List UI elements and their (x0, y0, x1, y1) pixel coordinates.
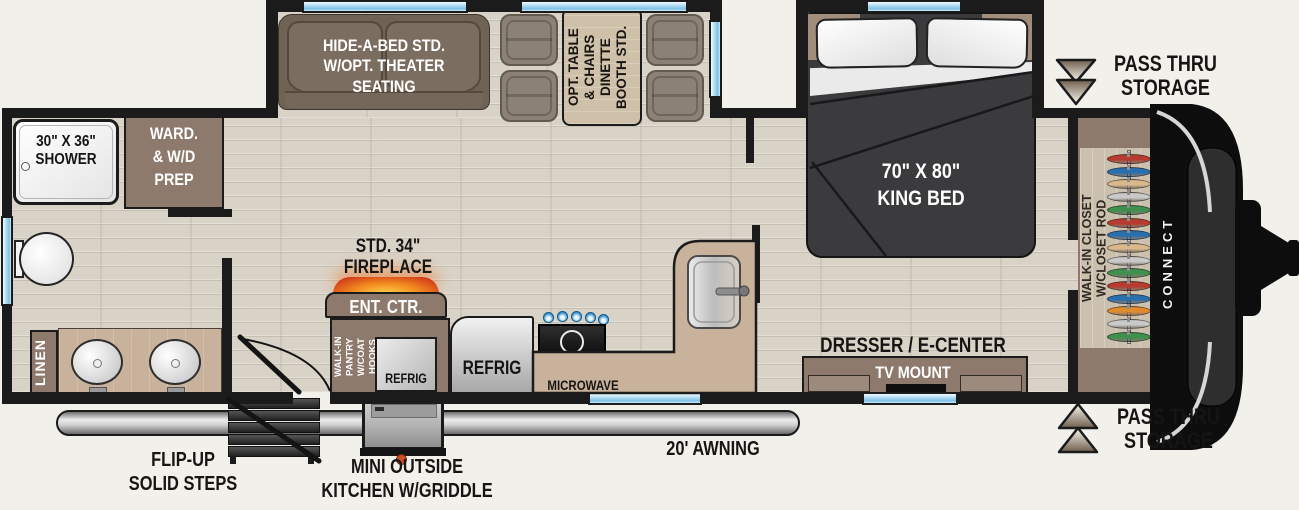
burner-ring (560, 330, 584, 354)
closet-rod-hangers (1107, 154, 1151, 344)
griddle-handle (375, 407, 384, 411)
walk-in-closet: WALK-IN CLOSET W/CLOSET ROD (1078, 118, 1156, 394)
wall-top-left (2, 108, 278, 118)
step-tread (228, 434, 320, 445)
clothes-hanger (1107, 319, 1151, 329)
awning-label: 20' AWNING (647, 438, 778, 460)
pass-thru-arrow-down (1057, 60, 1095, 104)
clothes-hanger (1107, 294, 1151, 304)
sofa-window (302, 0, 468, 13)
dresser-window (862, 392, 958, 405)
wall-bath-partition (222, 258, 232, 404)
wall-bedslide-right (1032, 0, 1044, 118)
wall-slideout-left (266, 0, 278, 118)
hitch-tongue (1261, 226, 1297, 290)
wall-closet-upper (1068, 117, 1078, 240)
dinette-chair (646, 14, 704, 66)
clothes-hanger (1107, 167, 1151, 177)
dinette-chair (500, 70, 558, 122)
wall-top-right (1032, 108, 1162, 118)
microwave-label: MICROWAVE (538, 378, 628, 394)
clothes-hanger (1107, 256, 1151, 266)
dinette-table-label: OPT. TABLE & CHAIRS DINETTE BOOTH STD. (566, 12, 638, 122)
toilet (19, 232, 74, 286)
outside-kitchen-unit (362, 396, 444, 450)
wall-closet-lower (1068, 290, 1078, 404)
ent-center-cabinet: ENT. CTR. (325, 292, 447, 318)
wall-bedslide-left (796, 0, 808, 118)
dresser-label: DRESSER / E-CENTER (815, 334, 1012, 358)
dinette-side-window (709, 20, 722, 98)
clothes-hanger (1107, 243, 1151, 253)
sink-drain (93, 359, 102, 368)
burner-flame-icon (557, 311, 568, 322)
wall-bottom-right (330, 392, 1162, 404)
wall-wardrobe-bottom (168, 209, 232, 217)
dinette-chair (646, 70, 704, 122)
king-bed (806, 12, 1036, 258)
clothes-hanger (1107, 179, 1151, 189)
bed-pillow (926, 17, 1029, 69)
step-tread (228, 410, 320, 421)
pantry-label: WALK-IN PANTRY W/COAT HOOKS (333, 321, 361, 393)
tv-mount-label: TV MOUNT (854, 362, 973, 383)
clothes-hanger (1107, 268, 1151, 278)
refrigerator-large-label: REFRIG (459, 358, 525, 379)
sink-drain (171, 359, 180, 368)
bed-pillow (816, 17, 919, 69)
burner-flame-icon (585, 312, 596, 323)
refrigerator-small: REFRIG (375, 337, 437, 392)
clothes-hanger (1107, 154, 1151, 164)
step-tread (228, 422, 320, 433)
vanity-counter (58, 328, 222, 396)
bed-window (866, 0, 962, 13)
rear-wall-window (1, 216, 13, 306)
stove-cooktop (538, 324, 606, 358)
refrigerator-large: REFRIG (450, 316, 534, 396)
hitch-body (1235, 200, 1261, 316)
linen-label: LINEN (32, 332, 56, 394)
clothes-hanger (1107, 218, 1151, 228)
wardrobe-label: WARD.& W/DPREP (132, 123, 217, 192)
wall-bedroom-stub-bottom (752, 225, 760, 303)
ent-center-label: ENT. CTR. (336, 296, 436, 319)
floorplan: OPT. TABLE & CHAIRS DINETTE BOOTH STD. E… (0, 0, 1299, 510)
king-bed-label: 70" X 80"KING BED (836, 158, 1006, 213)
refrigerator-small-label: REFRIG (382, 371, 430, 386)
burner-flame-icon (543, 312, 554, 323)
kitchen-window (588, 392, 702, 405)
clothes-hanger (1107, 230, 1151, 240)
clothes-hanger (1107, 192, 1151, 202)
shower-label: 30" X 36"SHOWER (24, 133, 109, 170)
outside-kitchen-label: MINI OUTSIDEKITCHEN W/GRIDDLE (309, 455, 506, 503)
front-cap-panel (1188, 148, 1236, 406)
clothes-hanger (1107, 306, 1151, 316)
pass-thru-arrow-up (1059, 404, 1097, 452)
fireplace-label: STD. 34"FIREPLACE (322, 236, 453, 279)
steps-label: FLIP-UPSOLID STEPS (109, 448, 257, 496)
clothes-hanger (1107, 281, 1151, 291)
brand-logo: CONNECT (1160, 188, 1180, 338)
hide-a-bed-label: HIDE-A-BED STD.W/OPT. THEATERSEATING (298, 36, 470, 97)
dinette-window (520, 0, 688, 13)
pantry-refrig-cabinet: WALK-IN PANTRY W/COAT HOOKS REFRIG (330, 318, 450, 396)
wall-top-mid (710, 108, 808, 118)
closet-label: WALK-IN CLOSET W/CLOSET ROD (1080, 150, 1110, 346)
wall-bedroom-stub-top (746, 118, 754, 163)
dinette-table: OPT. TABLE & CHAIRS DINETTE BOOTH STD. (562, 8, 642, 126)
hitch-coupler (1288, 240, 1299, 276)
burner-flame-icon (571, 311, 582, 322)
clothes-hanger (1107, 205, 1151, 215)
clothes-hanger (1107, 332, 1151, 342)
pass-thru-bottom-label: PASS THRUSTORAGE (1109, 405, 1228, 453)
dinette-chair (500, 14, 558, 66)
pass-thru-top-label: PASS THRUSTORAGE (1106, 52, 1225, 100)
